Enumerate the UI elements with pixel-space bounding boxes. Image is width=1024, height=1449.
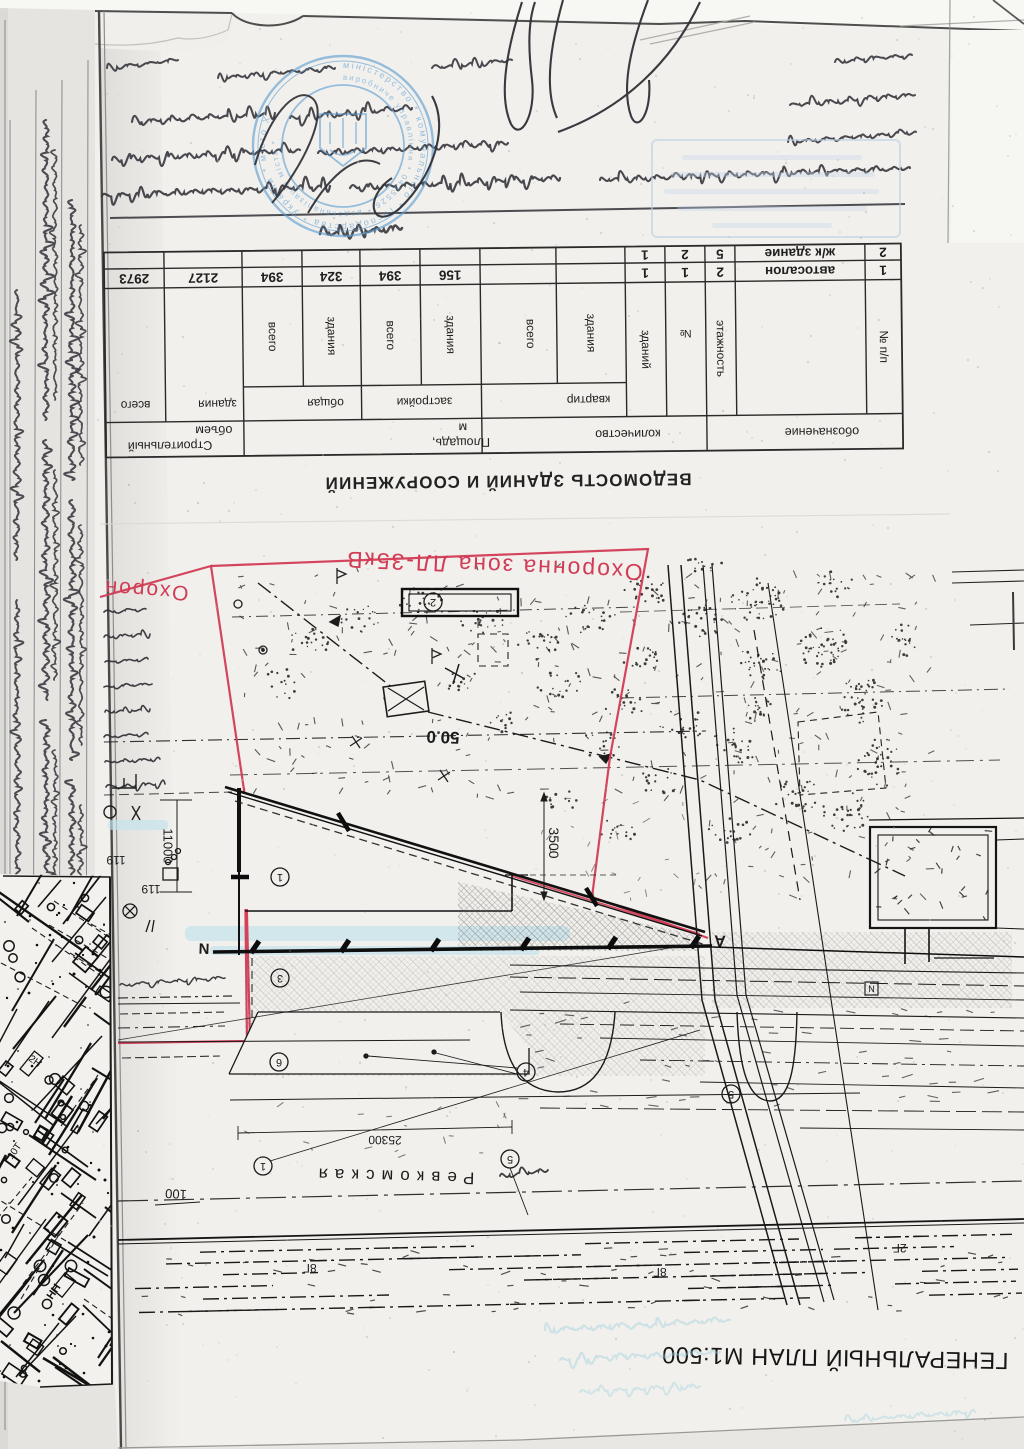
svg-text:50.0: 50.0 xyxy=(426,727,460,747)
svg-text:обозначение: обозначение xyxy=(785,424,860,439)
svg-text:всего: всего xyxy=(524,319,538,349)
svg-text:Площадь,: Площадь, xyxy=(432,435,490,450)
svg-text:N: N xyxy=(198,939,209,956)
svg-text:м: м xyxy=(458,420,467,434)
svg-text:всего: всего xyxy=(266,322,280,352)
svg-text:здания: здания xyxy=(444,315,458,354)
svg-text:4: 4 xyxy=(523,1066,529,1078)
svg-text:объем: объем xyxy=(195,423,232,437)
svg-text:всего: всего xyxy=(120,398,150,412)
svg-text:2127: 2127 xyxy=(188,270,218,285)
svg-text:№ п/п: № п/п xyxy=(877,330,891,363)
svg-text:2973: 2973 xyxy=(119,271,150,286)
svg-text:156: 156 xyxy=(438,267,461,282)
svg-text:здания: здания xyxy=(325,316,339,355)
svg-text:394: 394 xyxy=(378,268,401,283)
svg-text:324: 324 xyxy=(319,269,342,284)
svg-text:119: 119 xyxy=(141,882,160,896)
svg-text:зданий: зданий xyxy=(639,330,653,369)
svg-text:2: 2 xyxy=(430,596,436,608)
svg-text:всего: всего xyxy=(384,320,398,350)
svg-text:11000: 11000 xyxy=(161,828,176,863)
svg-text:квартир: квартир xyxy=(566,393,610,407)
svg-text:2: 2 xyxy=(716,264,724,279)
svg-text:2: 2 xyxy=(879,245,887,260)
svg-text:застройки: застройки xyxy=(397,395,453,410)
svg-text:А: А xyxy=(713,931,726,948)
svg-text:этажность: этажность xyxy=(714,320,729,377)
svg-text:2: 2 xyxy=(681,247,689,262)
svg-text:здания: здания xyxy=(584,314,598,353)
svg-text:количество: количество xyxy=(595,427,661,442)
svg-text:3500: 3500 xyxy=(546,827,562,858)
svg-text:1: 1 xyxy=(277,871,283,883)
svg-text:1: 1 xyxy=(641,247,649,262)
svg-text:119: 119 xyxy=(106,853,125,867)
svg-text:№: № xyxy=(680,327,692,339)
svg-text:1: 1 xyxy=(641,265,649,280)
svg-text:6: 6 xyxy=(276,1056,282,1068)
svg-text:100: 100 xyxy=(165,1186,187,1202)
svg-text:1: 1 xyxy=(879,263,887,278)
svg-text:ж/к здание: ж/к здание xyxy=(764,245,836,261)
svg-text:1: 1 xyxy=(681,265,689,280)
svg-text:8Г: 8Г xyxy=(303,1261,317,1275)
svg-text:общая: общая xyxy=(307,396,344,410)
svg-text:Строительный: Строительный xyxy=(128,438,213,453)
svg-text:здания: здания xyxy=(198,397,237,411)
svg-text:N: N xyxy=(868,984,875,994)
svg-text:автосалон: автосалон xyxy=(765,263,835,279)
svg-text:1: 1 xyxy=(260,1160,266,1172)
svg-text:5: 5 xyxy=(507,1153,513,1165)
svg-text:394: 394 xyxy=(260,269,283,284)
svg-text:8Г: 8Г xyxy=(653,1265,667,1279)
svg-text:5: 5 xyxy=(716,246,724,261)
svg-text:2Г: 2Г xyxy=(893,1241,907,1255)
